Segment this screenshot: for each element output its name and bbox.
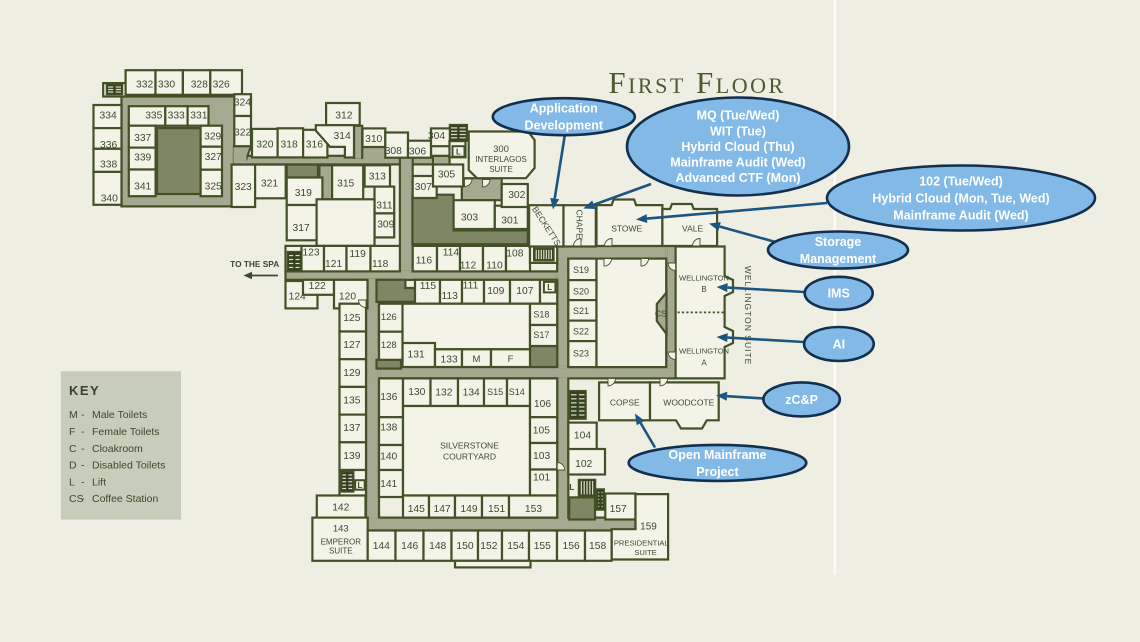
svg-text:L: L <box>456 147 461 156</box>
svg-text:WOODCOTE: WOODCOTE <box>663 398 714 408</box>
svg-text:310: 310 <box>365 134 382 145</box>
svg-text:Mainframe Audit (Wed): Mainframe Audit (Wed) <box>893 208 1028 222</box>
svg-text:120: 120 <box>339 291 356 302</box>
svg-text:127: 127 <box>343 340 360 351</box>
svg-text:Storage: Storage <box>815 235 862 249</box>
svg-text:115: 115 <box>420 281 437 292</box>
svg-text:311: 311 <box>376 201 393 212</box>
svg-text:S17: S17 <box>533 330 549 340</box>
svg-text:CS-Coffee Station: CS-Coffee Station <box>69 493 159 505</box>
svg-text:IMS: IMS <box>828 287 850 301</box>
svg-text:149: 149 <box>460 504 477 515</box>
svg-text:300: 300 <box>493 144 509 155</box>
svg-text:316: 316 <box>306 140 323 151</box>
svg-text:333: 333 <box>168 111 185 122</box>
svg-text:114: 114 <box>443 248 460 259</box>
svg-text:INTERLAGOS: INTERLAGOS <box>475 155 527 164</box>
svg-text:B: B <box>701 285 706 294</box>
svg-text:301: 301 <box>501 216 518 227</box>
svg-text:144: 144 <box>373 541 390 552</box>
svg-text:116: 116 <box>416 255 433 266</box>
svg-text:302: 302 <box>508 190 525 201</box>
svg-text:151: 151 <box>488 504 505 515</box>
svg-text:MQ (Tue/Wed): MQ (Tue/Wed) <box>697 109 780 123</box>
svg-text:321: 321 <box>261 179 278 190</box>
svg-text:337: 337 <box>134 133 151 144</box>
svg-text:Project: Project <box>696 465 739 479</box>
svg-text:SUITE: SUITE <box>489 165 513 174</box>
svg-text:105: 105 <box>533 426 550 437</box>
svg-text:Application: Application <box>530 102 598 116</box>
svg-text:341: 341 <box>134 181 151 192</box>
svg-text:306: 306 <box>409 147 426 158</box>
svg-text:309: 309 <box>377 220 394 231</box>
svg-text:STOWE: STOWE <box>611 224 642 234</box>
svg-text:128: 128 <box>381 340 397 351</box>
svg-text:136: 136 <box>380 392 397 403</box>
svg-text:157: 157 <box>610 504 627 515</box>
svg-text:131: 131 <box>408 349 425 360</box>
svg-text:Hybrid Cloud (Thu): Hybrid Cloud (Thu) <box>681 140 794 154</box>
svg-text:158: 158 <box>589 541 606 552</box>
svg-text:338: 338 <box>100 159 117 170</box>
svg-text:L: L <box>569 482 574 492</box>
svg-text:305: 305 <box>438 170 455 181</box>
svg-text:Hybrid Cloud (Mon, Tue, Wed): Hybrid Cloud (Mon, Tue, Wed) <box>872 191 1049 205</box>
svg-text:COPSE: COPSE <box>610 398 640 408</box>
svg-text:101: 101 <box>533 473 550 484</box>
svg-text:308: 308 <box>385 146 402 157</box>
svg-text:140: 140 <box>380 452 397 463</box>
svg-text:326: 326 <box>213 80 230 91</box>
svg-text:125: 125 <box>343 313 360 324</box>
svg-text:329: 329 <box>204 132 221 143</box>
svg-text:F-Female Toilets: F-Female Toilets <box>69 426 160 438</box>
svg-text:CS: CS <box>655 308 667 318</box>
svg-text:A: A <box>701 359 707 368</box>
svg-text:First Floor: First Floor <box>608 65 785 100</box>
svg-text:134: 134 <box>463 388 480 399</box>
svg-text:129: 129 <box>343 368 360 379</box>
svg-text:154: 154 <box>507 541 524 552</box>
svg-text:150: 150 <box>456 541 473 552</box>
svg-text:Management: Management <box>800 252 877 266</box>
svg-text:312: 312 <box>335 111 352 122</box>
svg-text:118: 118 <box>372 259 389 270</box>
svg-text:M-Male Toilets: M-Male Toilets <box>69 409 147 421</box>
svg-text:147: 147 <box>434 504 451 515</box>
svg-text:307: 307 <box>415 182 432 193</box>
svg-text:146: 146 <box>401 541 418 552</box>
svg-text:320: 320 <box>256 140 273 151</box>
svg-text:328: 328 <box>191 80 208 91</box>
svg-text:KEY: KEY <box>69 383 100 398</box>
svg-text:325: 325 <box>205 181 222 192</box>
svg-text:155: 155 <box>534 541 551 552</box>
svg-text:313: 313 <box>369 172 386 183</box>
svg-text:Development: Development <box>525 119 604 133</box>
svg-text:WELLINGTON SUITE: WELLINGTON SUITE <box>743 266 753 365</box>
svg-text:S20: S20 <box>573 286 589 296</box>
svg-text:122: 122 <box>309 281 326 292</box>
svg-text:S14: S14 <box>509 387 525 397</box>
svg-text:121: 121 <box>325 259 342 270</box>
svg-text:304: 304 <box>428 131 445 142</box>
svg-text:103: 103 <box>533 451 550 462</box>
svg-text:SUITE: SUITE <box>634 548 656 557</box>
svg-text:104: 104 <box>574 431 591 442</box>
svg-text:133: 133 <box>441 355 458 366</box>
svg-text:130: 130 <box>408 387 425 398</box>
svg-text:142: 142 <box>332 503 349 514</box>
svg-text:WIT (Tue): WIT (Tue) <box>710 124 766 138</box>
svg-text:M: M <box>473 354 481 365</box>
svg-text:156: 156 <box>563 541 580 552</box>
svg-text:102 (Tue/Wed): 102 (Tue/Wed) <box>919 174 1003 188</box>
svg-text:332: 332 <box>136 80 153 91</box>
svg-text:334: 334 <box>100 111 117 122</box>
svg-text:138: 138 <box>380 423 397 434</box>
svg-text:VALE: VALE <box>682 224 703 234</box>
svg-text:141: 141 <box>380 479 397 490</box>
svg-text:Mainframe Audit (Wed): Mainframe Audit (Wed) <box>670 155 805 169</box>
svg-text:WELLINGTON: WELLINGTON <box>679 274 729 283</box>
svg-text:323: 323 <box>235 182 252 193</box>
svg-text:PRESIDENTIAL: PRESIDENTIAL <box>614 539 669 548</box>
svg-text:123: 123 <box>302 247 319 258</box>
svg-text:S15: S15 <box>487 387 503 397</box>
svg-text:L: L <box>547 283 552 292</box>
svg-text:COURTYARD: COURTYARD <box>443 452 496 462</box>
svg-text:317: 317 <box>293 223 310 234</box>
svg-text:324: 324 <box>234 98 251 109</box>
svg-text:zC&P: zC&P <box>785 393 818 407</box>
svg-text:S21: S21 <box>573 306 589 316</box>
svg-text:Open Mainframe: Open Mainframe <box>669 448 767 462</box>
svg-text:126: 126 <box>381 312 397 323</box>
svg-text:C-Cloakroom: C-Cloakroom <box>69 443 143 455</box>
svg-text:S23: S23 <box>573 349 589 359</box>
svg-text:SILVERSTONE: SILVERSTONE <box>440 441 499 451</box>
svg-text:SUITE: SUITE <box>329 547 353 556</box>
svg-text:159: 159 <box>640 522 657 533</box>
svg-text:319: 319 <box>295 188 312 199</box>
svg-text:340: 340 <box>101 194 118 205</box>
svg-text:315: 315 <box>337 178 354 189</box>
svg-text:107: 107 <box>516 286 533 297</box>
svg-text:335: 335 <box>145 111 162 122</box>
svg-text:D-Disabled Toilets: D-Disabled Toilets <box>69 460 165 472</box>
svg-text:152: 152 <box>480 541 497 552</box>
svg-text:322: 322 <box>234 128 251 139</box>
svg-text:109: 109 <box>487 286 504 297</box>
svg-text:137: 137 <box>343 423 360 434</box>
svg-text:Advanced CTF (Mon): Advanced CTF (Mon) <box>676 171 801 185</box>
svg-text:F: F <box>508 354 514 365</box>
svg-text:S19: S19 <box>573 265 589 275</box>
svg-text:132: 132 <box>435 388 452 399</box>
svg-text:339: 339 <box>134 153 151 164</box>
svg-text:111: 111 <box>463 281 479 292</box>
svg-text:L: L <box>358 481 363 490</box>
svg-text:327: 327 <box>205 152 222 163</box>
svg-text:135: 135 <box>343 396 360 407</box>
svg-text:112: 112 <box>460 261 477 272</box>
svg-text:EMPEROR: EMPEROR <box>321 537 362 546</box>
svg-text:318: 318 <box>281 140 298 151</box>
svg-text:S18: S18 <box>533 310 549 320</box>
svg-text:314: 314 <box>334 131 351 142</box>
svg-text:148: 148 <box>429 541 446 552</box>
svg-text:331: 331 <box>190 111 207 122</box>
svg-text:113: 113 <box>441 291 458 302</box>
svg-text:110: 110 <box>486 261 503 272</box>
svg-text:S22: S22 <box>573 327 589 337</box>
svg-text:AI: AI <box>833 337 846 351</box>
svg-text:330: 330 <box>158 80 175 91</box>
svg-text:139: 139 <box>343 451 360 462</box>
svg-text:153: 153 <box>525 504 542 515</box>
svg-text:303: 303 <box>461 213 478 224</box>
svg-text:145: 145 <box>408 504 425 515</box>
svg-text:106: 106 <box>534 399 551 410</box>
svg-text:108: 108 <box>506 249 523 260</box>
svg-text:WELLINGTON: WELLINGTON <box>679 347 729 356</box>
svg-text:143: 143 <box>333 524 349 535</box>
svg-text:TO THE SPA: TO THE SPA <box>230 259 279 269</box>
svg-text:119: 119 <box>349 249 366 260</box>
svg-text:102: 102 <box>575 459 592 470</box>
